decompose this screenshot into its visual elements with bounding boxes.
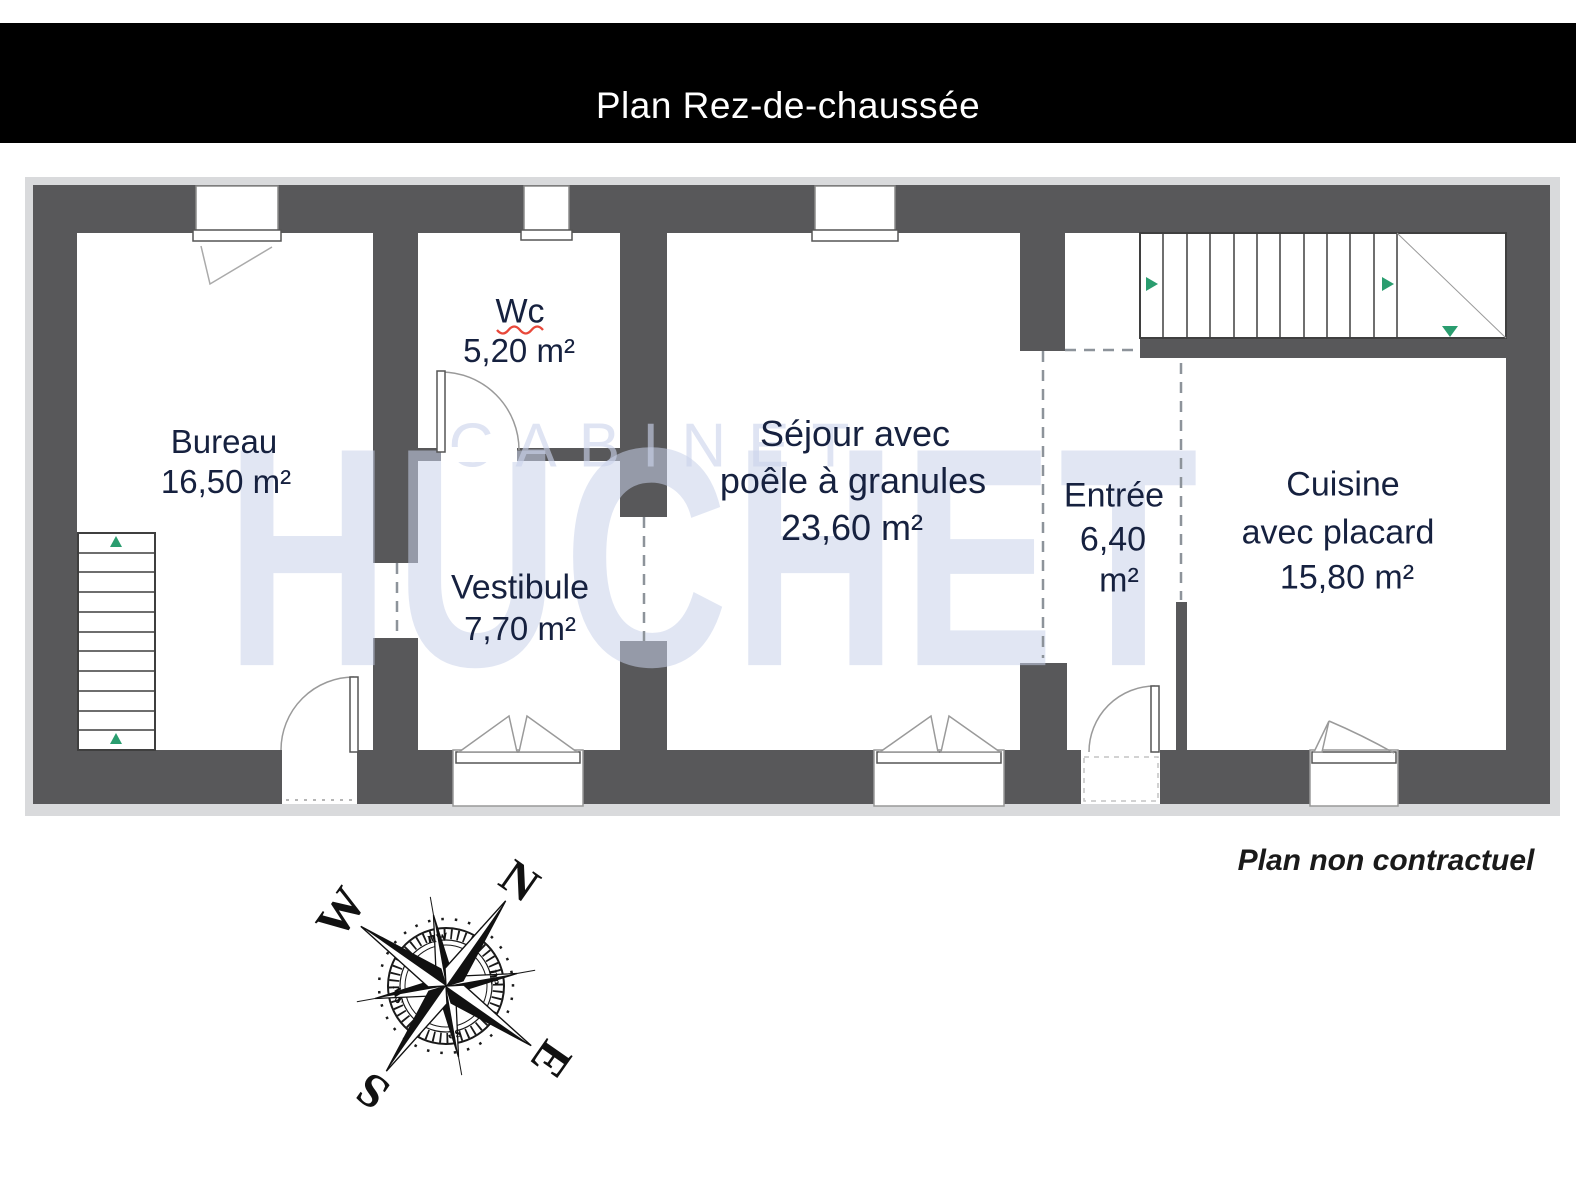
compass-rose-icon: nw ne se sw N E S W bbox=[231, 771, 661, 1184]
cuisine-name-label-2: avec placard bbox=[1242, 514, 1435, 553]
compass-north-label: N bbox=[490, 849, 549, 912]
cuisine-area-label: 15,80 m² bbox=[1280, 559, 1414, 598]
compass-south-label: S bbox=[346, 1061, 398, 1120]
window-cuisine bbox=[1310, 721, 1398, 806]
page: { "header": { "title": "Plan Rez-de-chau… bbox=[0, 0, 1576, 1184]
door-entree bbox=[1081, 686, 1160, 804]
entree-area-value-label: 6,40 bbox=[1080, 521, 1146, 560]
window-bureau bbox=[193, 186, 281, 284]
door-wc bbox=[437, 371, 519, 462]
sejour-area-label: 23,60 m² bbox=[781, 507, 923, 549]
bureau-area-label: 16,50 m² bbox=[161, 463, 291, 501]
french-window-sejour bbox=[874, 716, 1004, 806]
stairs-upper bbox=[1140, 233, 1506, 338]
door-bureau bbox=[281, 677, 358, 804]
cuisine-name-label-1: Cuisine bbox=[1286, 466, 1399, 505]
window-sejour bbox=[812, 186, 898, 241]
disclaimer-note: Plan non contractuel bbox=[1238, 844, 1535, 878]
wc-area-label: 5,20 m² bbox=[463, 332, 575, 370]
compass-ne-label: ne bbox=[485, 968, 505, 987]
french-window-vestibule bbox=[453, 716, 583, 806]
entree-name-label: Entrée bbox=[1064, 477, 1164, 516]
wc-name-label: Wc bbox=[495, 293, 544, 332]
stairs-bureau bbox=[78, 533, 155, 750]
compass-west-label: W bbox=[306, 878, 377, 948]
entree-area-unit-label: m² bbox=[1099, 562, 1139, 601]
sejour-name-label-2: poêle à granules bbox=[720, 460, 986, 502]
compass-nw-label: nw bbox=[426, 927, 450, 947]
window-wc bbox=[521, 186, 572, 240]
vestibule-name-label: Vestibule bbox=[451, 569, 589, 608]
compass-sw-label: sw bbox=[387, 984, 407, 1005]
vestibule-area-label: 7,70 m² bbox=[464, 610, 576, 648]
bureau-name-label: Bureau bbox=[171, 423, 277, 461]
compass-east-label: E bbox=[520, 1031, 582, 1088]
sejour-name-label-1: Séjour avec bbox=[760, 413, 950, 455]
compass-se-label: se bbox=[447, 1025, 463, 1044]
